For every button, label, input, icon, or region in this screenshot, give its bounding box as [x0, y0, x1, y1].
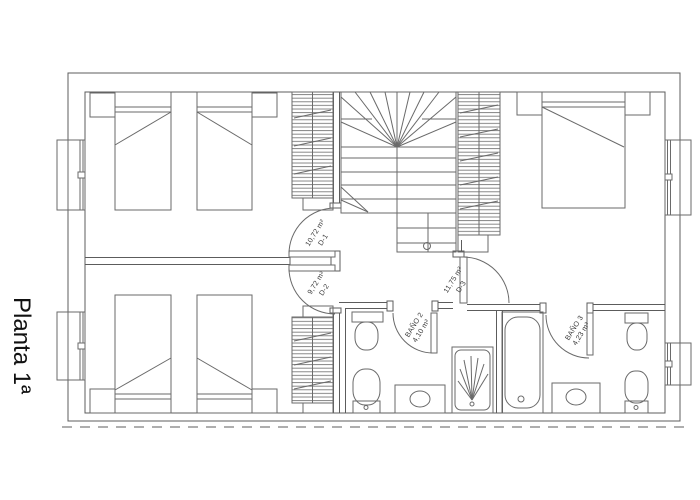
nightstand — [625, 92, 650, 115]
shower-drain — [470, 402, 474, 406]
shower — [452, 347, 493, 413]
door-leaf-d1 — [289, 251, 335, 257]
window-d2-left — [57, 312, 85, 380]
bathtub-drain — [518, 396, 524, 402]
window-bano3-right — [665, 343, 691, 385]
nightstand — [90, 389, 115, 413]
nightstand — [90, 93, 115, 117]
door-leaf-bano2 — [431, 313, 437, 353]
bedroom-d1-furniture — [90, 92, 333, 210]
door-leaf-d2 — [289, 265, 335, 271]
door-leaf-bano3 — [587, 313, 593, 355]
interior-walls — [85, 92, 665, 413]
page-title: Planta 1ª — [8, 297, 35, 394]
stair-lower-flight — [397, 213, 456, 252]
outer-wall — [68, 73, 680, 421]
nightstand — [517, 92, 542, 115]
jamb-d2 — [330, 308, 341, 313]
bedroom-d3-furniture — [458, 92, 650, 252]
doors — [289, 208, 593, 358]
wardrobe-d3 — [458, 92, 500, 252]
washbasin — [395, 385, 445, 413]
nightstand — [252, 93, 277, 117]
single-bed — [115, 295, 171, 413]
toilet — [625, 313, 648, 350]
washbasin — [552, 383, 600, 413]
bidet — [353, 369, 380, 413]
floor-plan-page: 10,72 m² D-1 9,72 m² D-2 11,75 m² D-3 BA… — [0, 0, 700, 500]
jamb-d1 — [330, 203, 341, 208]
window-d3-right — [665, 140, 691, 215]
single-bed — [115, 92, 171, 210]
bedroom-d2-furniture — [90, 295, 333, 413]
inner-wall — [85, 92, 665, 413]
single-bed — [197, 295, 252, 413]
window-d1-left — [57, 140, 85, 210]
door-swing-arc-d3 — [463, 257, 509, 303]
room-labels: 10,72 m² D-1 9,72 m² D-2 11,75 m² D-3 BA… — [303, 217, 592, 347]
wardrobe-d1 — [292, 92, 333, 210]
jamb-bano3-right — [587, 303, 593, 313]
toilet — [352, 312, 383, 350]
floor-plan-drawing: 10,72 m² D-1 9,72 m² D-2 11,75 m² D-3 BA… — [0, 0, 700, 500]
nightstand — [252, 389, 277, 413]
wardrobe-d2 — [292, 306, 333, 413]
stair-upper-flight — [341, 92, 456, 213]
bidet — [625, 371, 648, 413]
double-bed — [542, 92, 625, 208]
door-d3 — [460, 257, 509, 303]
staircase — [341, 92, 456, 252]
single-bed — [197, 92, 252, 210]
jamb-bano2-left — [387, 301, 393, 311]
jamb-bano2-right — [432, 301, 438, 311]
bathtub — [502, 312, 543, 413]
stair-newel-post — [424, 243, 431, 250]
